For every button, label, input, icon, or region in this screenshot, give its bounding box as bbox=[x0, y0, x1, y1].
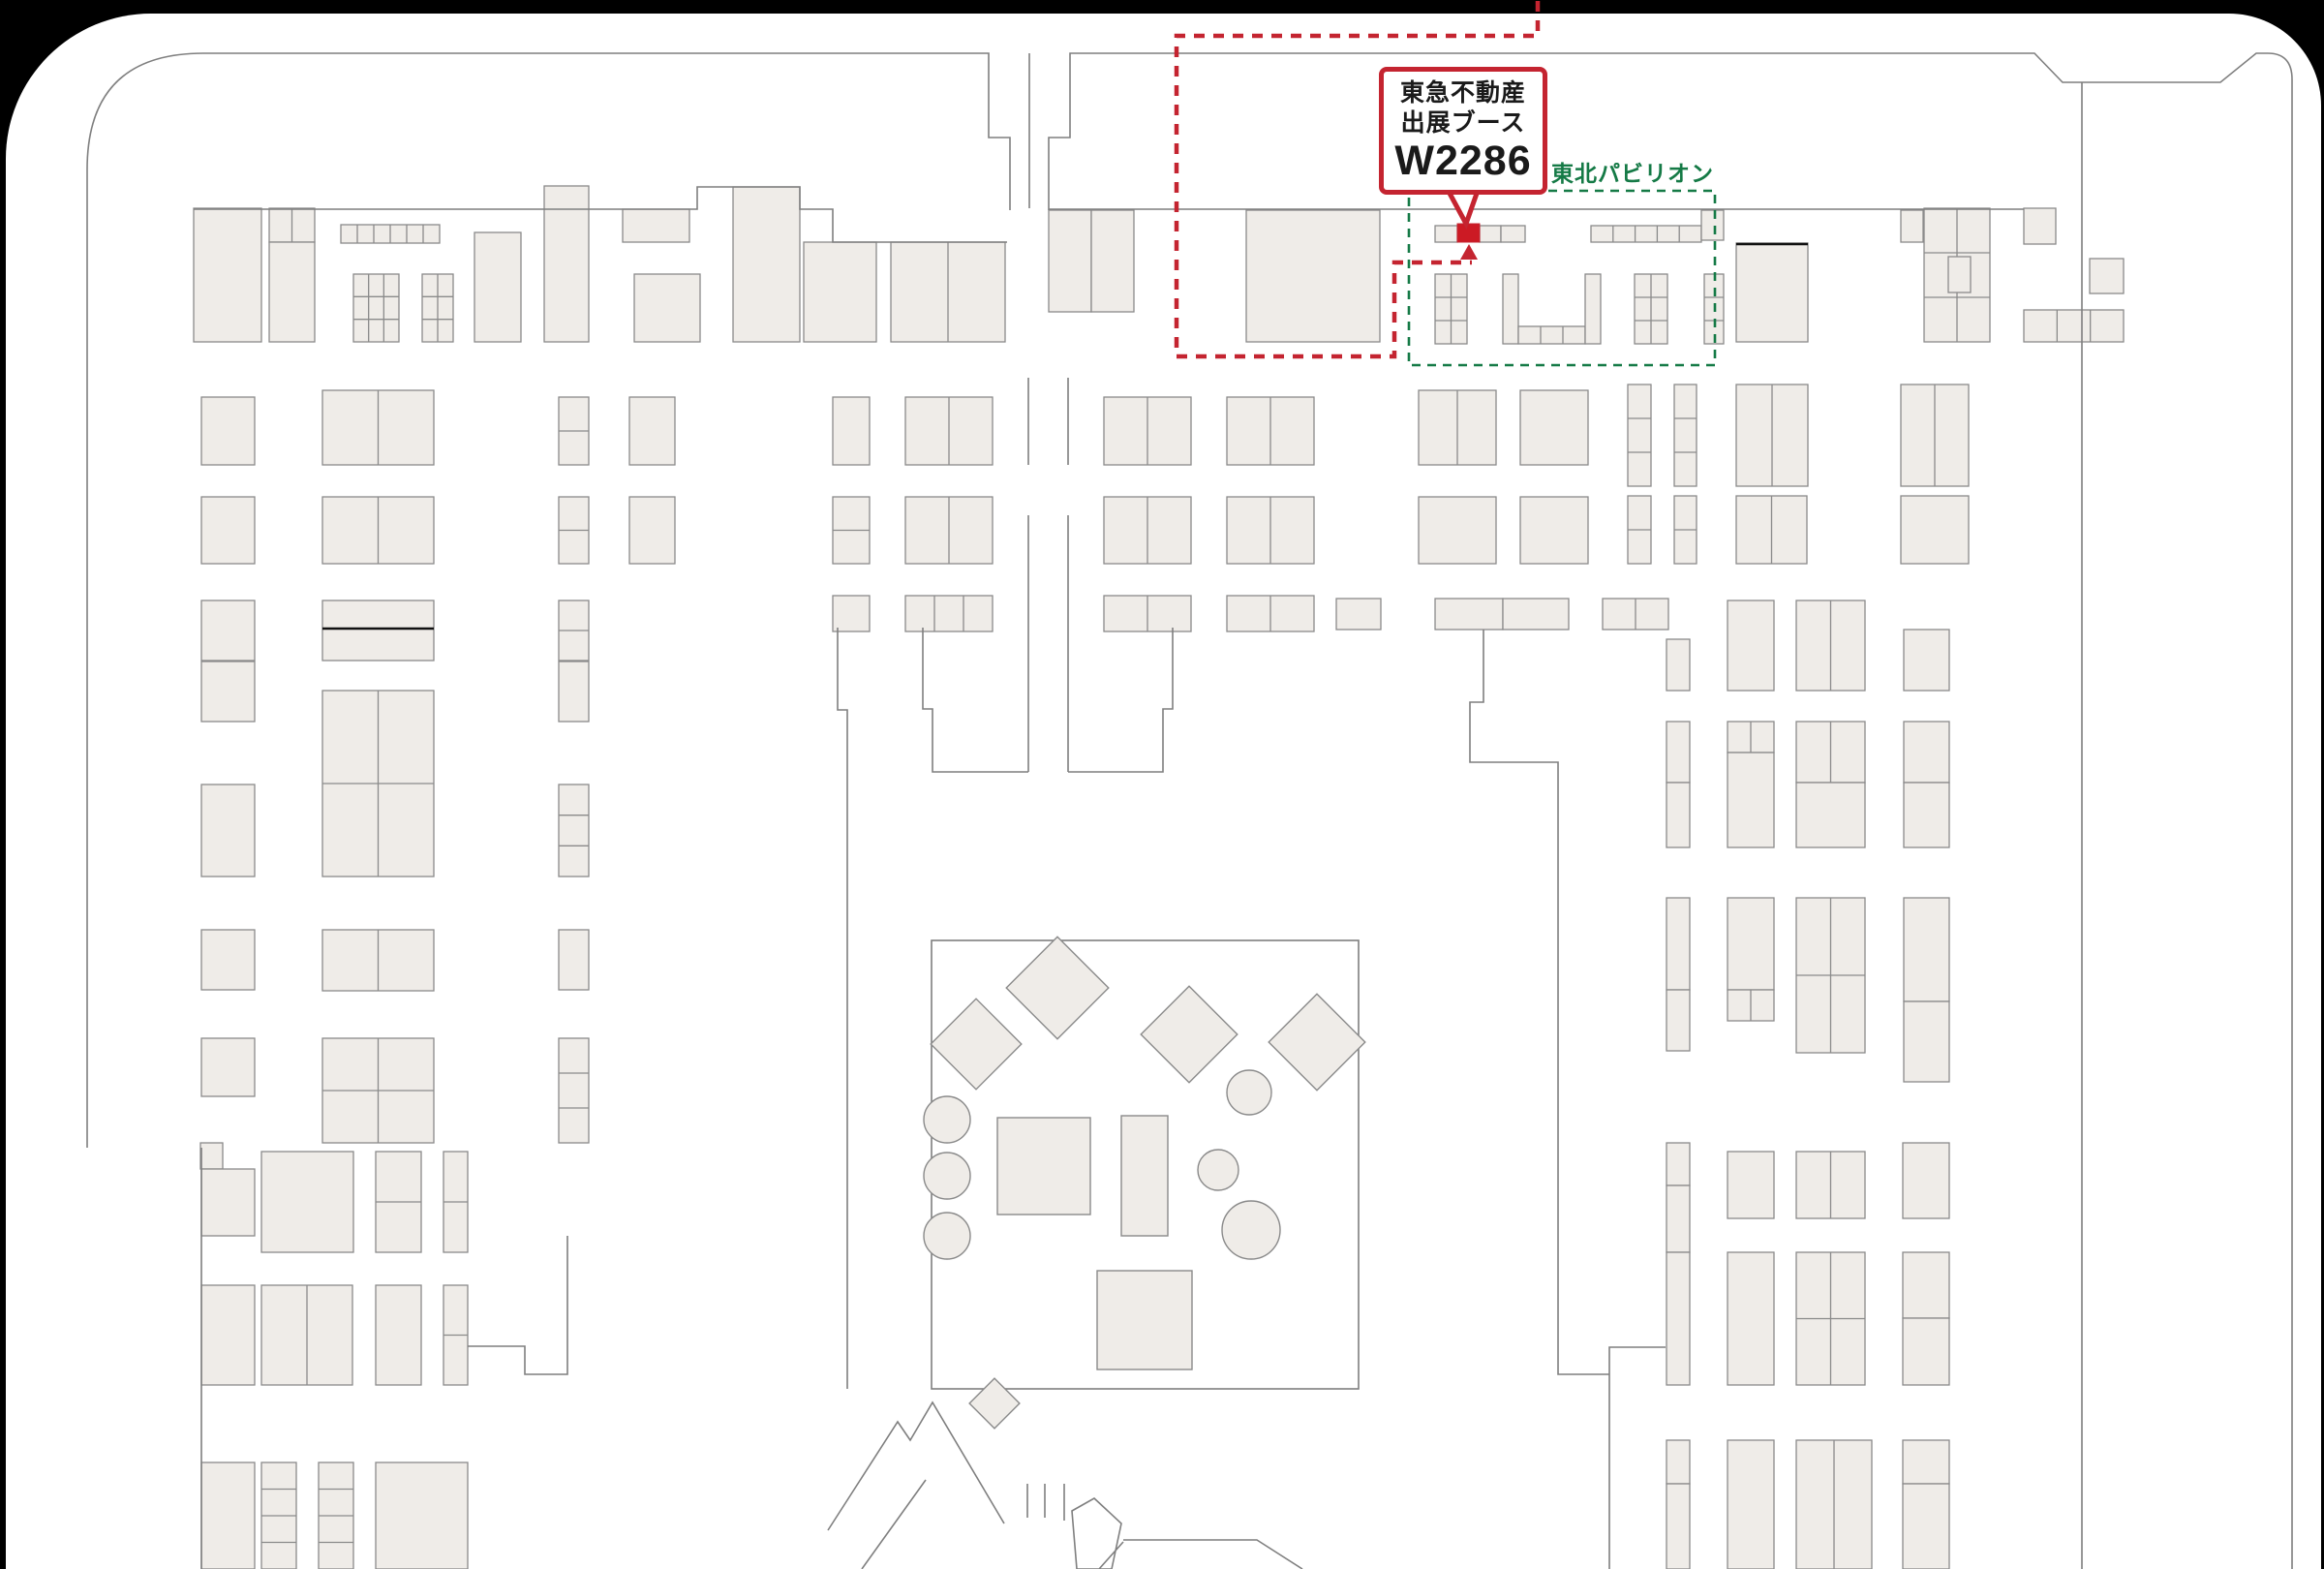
map-page-background bbox=[6, 14, 2321, 1569]
booth-callout: 東急不動産 出展ブース W2286 bbox=[1379, 67, 1547, 195]
tohoku-pavilion-label: 東北パビリオン bbox=[1538, 155, 1714, 188]
callout-booth-number: W2286 bbox=[1384, 139, 1543, 183]
callout-booth-line: 出展ブース bbox=[1384, 108, 1543, 138]
exhibition-floor-map: 東急不動産 出展ブース W2286 東北パビリオン bbox=[0, 0, 2324, 1569]
callout-company-line: 東急不動産 bbox=[1384, 78, 1543, 108]
floor-map-screenshot: { "callout": { "line1": "東急不動産", "line2"… bbox=[0, 0, 2324, 1569]
